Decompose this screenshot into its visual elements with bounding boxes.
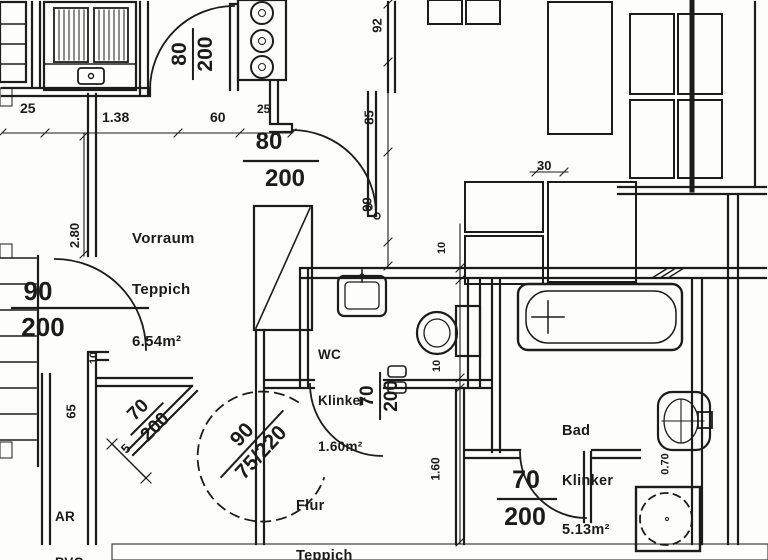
room-name: Bad xyxy=(562,423,613,440)
dim-label: 85 xyxy=(362,110,377,124)
room-name: Vorraum xyxy=(132,230,195,247)
dim-label: 99 xyxy=(360,197,375,211)
floor-plan-linework xyxy=(0,0,768,560)
door-width: 80 xyxy=(169,28,194,80)
wc-sink xyxy=(338,270,386,316)
room-floor: Klinker xyxy=(562,473,613,490)
dim-label: 1.60 xyxy=(429,457,443,480)
bathtub xyxy=(518,284,682,350)
dim-label: 25 xyxy=(257,102,270,116)
room-floor: Teppich xyxy=(296,548,353,560)
room-label-ar: AR PVC 1.67m² xyxy=(55,478,100,560)
dim-label: 10 xyxy=(436,242,448,254)
dim-label: 30 xyxy=(537,158,551,173)
door-label-bad-width: 70 xyxy=(504,466,548,495)
room-floor: Teppich xyxy=(132,281,195,298)
dim-label: 60 xyxy=(210,109,226,125)
door-height: 200 xyxy=(194,28,217,80)
door-label-kitchen-width: 80 xyxy=(236,128,302,156)
washbasin xyxy=(658,392,712,450)
floor-plan: Vorraum Teppich 6.54m² WC Klinker 1.60m²… xyxy=(0,0,768,560)
door-label-vorraum-width: 90 xyxy=(14,276,62,307)
dim-label: 1.38 xyxy=(102,109,129,125)
dim-label: 92 xyxy=(370,18,385,32)
stove xyxy=(238,0,286,80)
door-label-kitchen-height: 200 xyxy=(252,165,318,193)
cabinets xyxy=(428,0,722,284)
room-name: AR xyxy=(55,509,100,524)
room-label-flur: Flur Teppich 4.77m² xyxy=(296,465,353,560)
walls xyxy=(0,0,768,560)
dim-label: 65 xyxy=(64,404,79,418)
dim-label: 2.80 xyxy=(67,223,82,248)
room-label-bad: Bad Klinker 5.13m² xyxy=(562,390,613,560)
dim-label: 25 xyxy=(20,100,36,116)
room-name: Flur xyxy=(296,498,353,515)
door-label-top-left: 80 200 xyxy=(169,28,217,80)
room-area: 5.13m² xyxy=(562,522,613,539)
toilet xyxy=(417,306,480,356)
dimension-lines xyxy=(0,0,568,546)
kitchen-sink xyxy=(44,2,136,90)
door-label-vorraum-height: 200 xyxy=(10,312,76,343)
door-label-bad-height: 200 xyxy=(494,503,556,532)
dim-label: 10 xyxy=(431,360,443,372)
door-height: 200 xyxy=(381,372,402,420)
dim-label: 10 xyxy=(88,352,100,364)
door-label-wc: 70 200 xyxy=(358,372,402,420)
room-area: 6.54m² xyxy=(132,333,195,350)
adjacent-room-fragment xyxy=(0,2,26,82)
wall-hatch xyxy=(652,268,684,278)
dim-label: 0.70 xyxy=(660,453,672,474)
door-width: 70 xyxy=(358,372,381,420)
room-floor: PVC xyxy=(55,555,100,560)
shower xyxy=(636,487,700,551)
room-area: 1.60m² xyxy=(318,439,366,454)
room-label-vorraum: Vorraum Teppich 6.54m² xyxy=(132,196,195,384)
room-name: WC xyxy=(318,347,366,362)
